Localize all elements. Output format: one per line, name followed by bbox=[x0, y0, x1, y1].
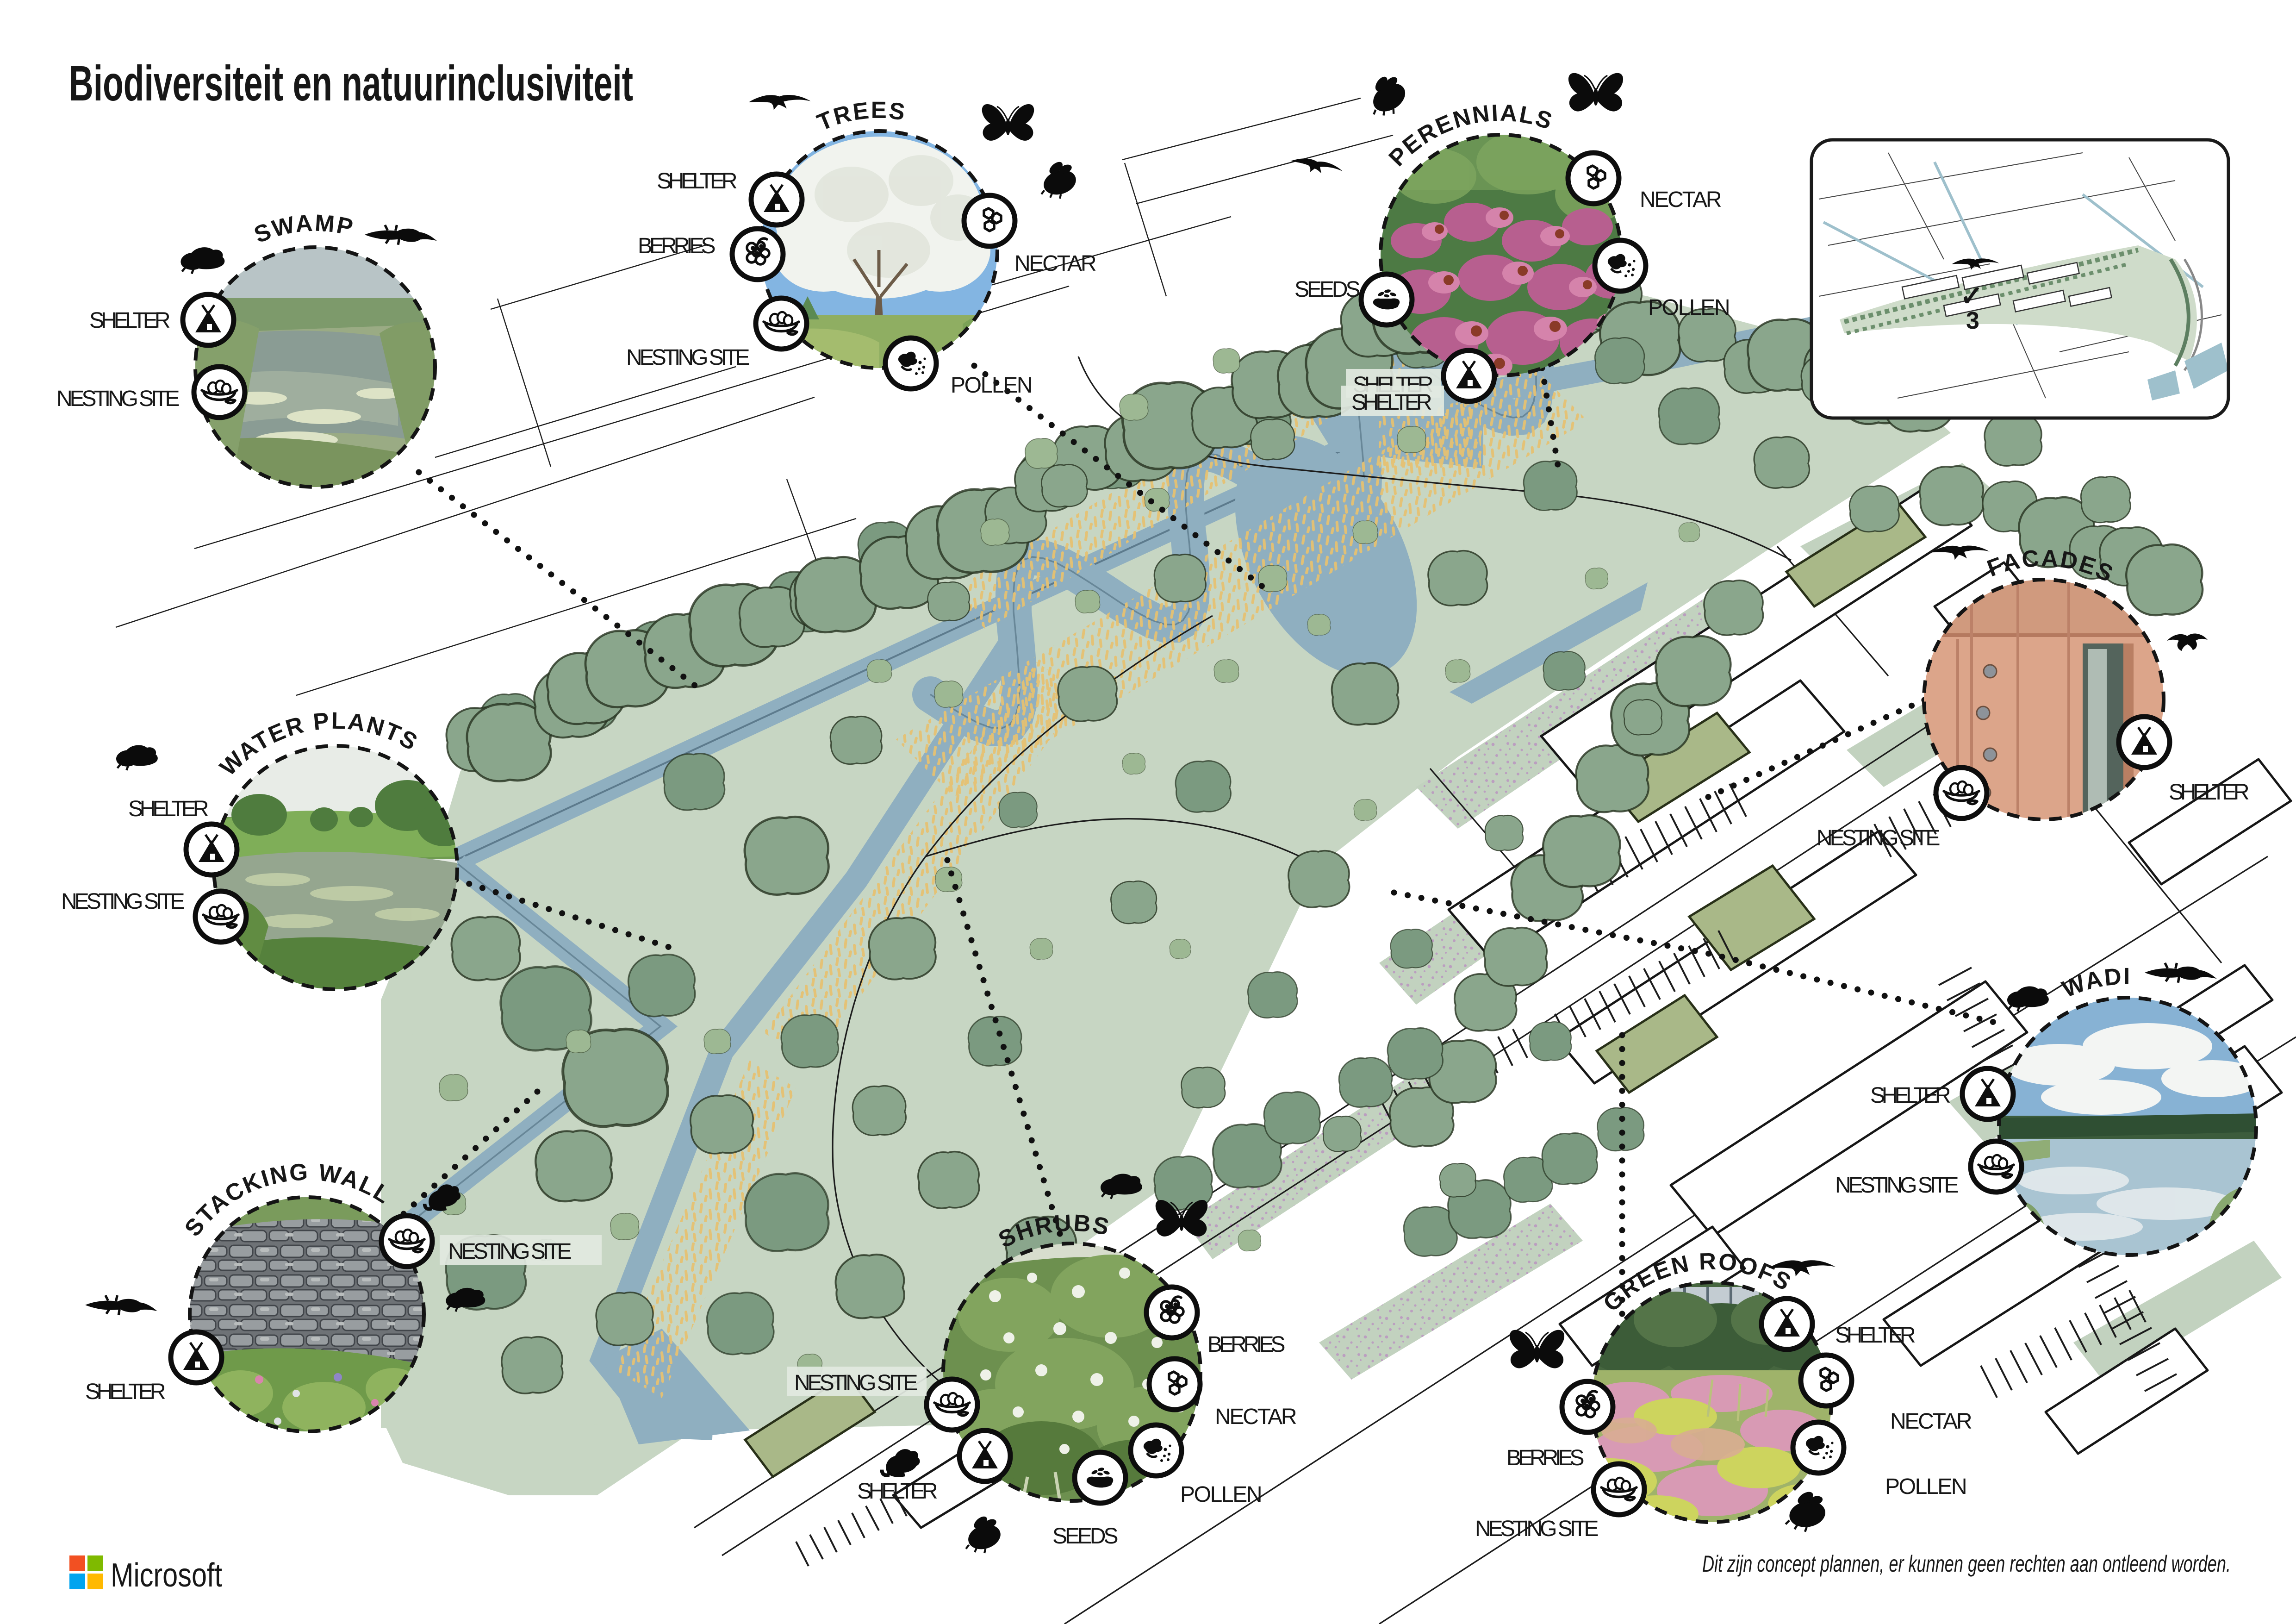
svg-text:SHELTER: SHELTER bbox=[85, 1380, 166, 1404]
svg-text:SEEDS: SEEDS bbox=[1294, 277, 1361, 302]
svg-text:SHELTER: SHELTER bbox=[2169, 780, 2250, 805]
svg-text:SHELTER: SHELTER bbox=[1835, 1323, 1916, 1348]
svg-text:NESTING SITE: NESTING SITE bbox=[626, 345, 750, 370]
svg-text:NECTAR: NECTAR bbox=[1640, 187, 1722, 212]
svg-text:BERRIES: BERRIES bbox=[1207, 1332, 1286, 1357]
svg-text:SHELTER: SHELTER bbox=[1351, 390, 1432, 415]
svg-text:SHELTER: SHELTER bbox=[1870, 1083, 1951, 1108]
svg-text:NESTING SITE: NESTING SITE bbox=[794, 1371, 918, 1395]
svg-text:SEEDS: SEEDS bbox=[1052, 1524, 1119, 1549]
svg-text:NESTING SITE: NESTING SITE bbox=[1817, 826, 1941, 850]
svg-text:SHELTER: SHELTER bbox=[128, 797, 209, 821]
svg-text:POLLEN: POLLEN bbox=[951, 373, 1033, 398]
svg-text:SHELTER: SHELTER bbox=[857, 1479, 938, 1504]
svg-text:✓: ✓ bbox=[1960, 281, 1983, 312]
svg-text:SHELTER: SHELTER bbox=[657, 169, 738, 194]
svg-text:NECTAR: NECTAR bbox=[1215, 1405, 1297, 1429]
svg-text:NECTAR: NECTAR bbox=[1014, 251, 1097, 276]
svg-text:NECTAR: NECTAR bbox=[1890, 1409, 1972, 1434]
svg-text:POLLEN: POLLEN bbox=[1180, 1482, 1263, 1507]
svg-text:NESTING SITE: NESTING SITE bbox=[448, 1239, 572, 1264]
svg-text:NESTING SITE: NESTING SITE bbox=[1835, 1173, 1959, 1198]
svg-text:POLLEN: POLLEN bbox=[1648, 295, 1730, 320]
svg-text:Dit zijn concept plannen, er k: Dit zijn concept plannen, er kunnen geen… bbox=[1702, 1551, 2231, 1577]
svg-text:BERRIES: BERRIES bbox=[638, 234, 716, 258]
svg-text:3: 3 bbox=[1966, 307, 1979, 334]
svg-text:NESTING SITE: NESTING SITE bbox=[56, 387, 180, 411]
svg-text:NESTING SITE: NESTING SITE bbox=[1475, 1517, 1599, 1541]
svg-text:Biodiversiteit en natuurinclus: Biodiversiteit en natuurinclusiviteit bbox=[69, 55, 633, 111]
svg-text:Microsoft: Microsoft bbox=[111, 1557, 222, 1594]
svg-text:POLLEN: POLLEN bbox=[1885, 1474, 1967, 1499]
svg-text:BERRIES: BERRIES bbox=[1506, 1446, 1585, 1470]
svg-text:NESTING SITE: NESTING SITE bbox=[61, 889, 185, 914]
svg-text:SHELTER: SHELTER bbox=[89, 308, 171, 333]
